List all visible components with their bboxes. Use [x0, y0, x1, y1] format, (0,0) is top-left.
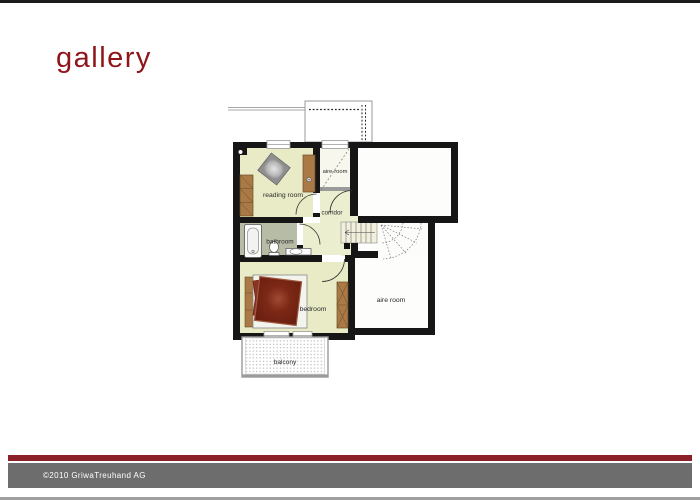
floor-plan-image: reading room aire-room corridor bathroom…: [225, 95, 465, 385]
roof-outline: [228, 101, 372, 142]
bed: [253, 275, 307, 328]
copyright-text: ©2010 GriwaTreuhand AG: [8, 471, 146, 480]
top-right-room-floor: [360, 148, 451, 218]
gallery-page: gallery: [0, 0, 700, 500]
wardrobe: [337, 282, 348, 328]
label-bedroom: bedroom: [300, 306, 327, 313]
aire-room-floor: [355, 258, 428, 328]
label-bathroom: bathroom: [266, 239, 293, 246]
footer-bar: ©2010 GriwaTreuhand AG: [8, 463, 692, 488]
label-corridor: corridor: [322, 210, 343, 217]
newel-post: [344, 243, 350, 249]
label-aire-room-small: aire-room: [323, 169, 348, 175]
wall-corner-dot: [239, 150, 243, 154]
landing-floor: [355, 243, 378, 251]
sink: [286, 249, 311, 256]
bathtub: [245, 225, 262, 258]
footer-accent-bar: [8, 455, 692, 461]
top-border-bar: [0, 0, 700, 3]
label-balcony: balcony: [274, 359, 297, 366]
shelf: [303, 155, 315, 192]
aire-room-small-floor: [320, 148, 350, 187]
floor-plan-svg: reading room aire-room corridor bathroom…: [225, 95, 465, 385]
label-reading-room: reading room: [263, 192, 303, 199]
cabinet: [240, 175, 253, 216]
page-title: gallery: [56, 42, 152, 75]
aire-room-small-low-wall: [320, 187, 350, 191]
label-aire-room: aire room: [377, 297, 406, 304]
bedside-units: [245, 277, 253, 327]
balcony: [242, 337, 328, 377]
